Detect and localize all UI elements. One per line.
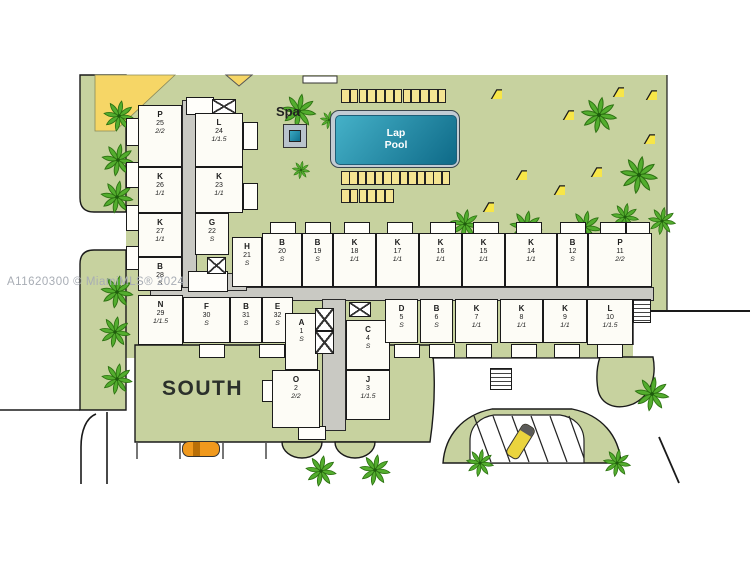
unit-number: 20 xyxy=(278,248,286,256)
unit-config: S xyxy=(244,320,249,328)
unit-config: 2/2 xyxy=(291,393,300,401)
unit-letter: C xyxy=(365,325,371,335)
elevator-icon xyxy=(315,308,334,331)
unit-H21: H21S xyxy=(232,237,262,287)
unit-number: 10 xyxy=(606,314,614,322)
unit-config: 1/1 xyxy=(155,236,164,244)
unit-J3: J31/1.5 xyxy=(346,370,390,420)
unit-config: 1/1.5 xyxy=(360,393,375,401)
porch xyxy=(466,344,492,358)
unit-number: 18 xyxy=(351,248,359,256)
unit-letter: B xyxy=(434,304,440,314)
unit-number: 6 xyxy=(435,314,439,322)
unit-letter: K xyxy=(562,304,568,314)
unit-A1: A1S xyxy=(285,313,318,370)
unit-letter: J xyxy=(366,375,370,385)
unit-letter: L xyxy=(217,118,222,128)
unit-config: S xyxy=(434,322,439,330)
unit-number: 15 xyxy=(480,248,488,256)
unit-K14: K141/1 xyxy=(505,233,557,287)
unit-letter: O xyxy=(293,375,299,385)
unit-L24: L241/1.5 xyxy=(195,113,243,167)
unit-number: 17 xyxy=(394,248,402,256)
unit-letter: B xyxy=(570,238,576,248)
unit-number: 30 xyxy=(203,312,211,320)
unit-config: 1/1 xyxy=(479,256,488,264)
unit-letter: K xyxy=(352,238,358,248)
unit-number: 7 xyxy=(475,314,479,322)
unit-config: S xyxy=(570,256,575,264)
unit-B31: B31S xyxy=(230,297,262,343)
unit-config: 1/1.5 xyxy=(153,318,168,326)
unit-K9: K91/1 xyxy=(543,299,587,343)
unit-number: 23 xyxy=(215,182,223,190)
unit-number: 16 xyxy=(437,248,445,256)
lap-pool: Lap Pool xyxy=(330,110,460,168)
unit-letter: K xyxy=(157,172,163,182)
unit-letter: K xyxy=(528,238,534,248)
unit-letter: K xyxy=(157,218,163,228)
porch xyxy=(199,344,225,358)
unit-D5: D5S xyxy=(385,299,418,343)
unit-config: S xyxy=(299,336,304,344)
unit-number: 11 xyxy=(616,248,623,256)
unit-config: S xyxy=(275,320,280,328)
unit-O2: O22/2 xyxy=(272,370,320,428)
elevator-icon xyxy=(207,257,226,274)
site-plan: P252/2L241/1.5K261/1K231/1K271/1G22SB28S… xyxy=(0,0,750,563)
porch xyxy=(259,344,285,358)
spa-water xyxy=(289,130,301,142)
unit-number: 21 xyxy=(243,252,251,260)
unit-number: 9 xyxy=(563,314,567,322)
porch xyxy=(554,344,580,358)
unit-config: 1/1 xyxy=(560,322,569,330)
porch xyxy=(429,344,455,358)
unit-letter: K xyxy=(474,304,480,314)
unit-K23: K231/1 xyxy=(195,167,243,213)
unit-K17: K171/1 xyxy=(376,233,419,287)
unit-letter: P xyxy=(617,238,622,248)
unit-config: 1/1.5 xyxy=(211,136,226,144)
porch xyxy=(597,344,623,358)
unit-config: 1/1 xyxy=(472,322,481,330)
unit-number: 4 xyxy=(366,335,370,343)
unit-config: S xyxy=(210,236,215,244)
unit-letter: P xyxy=(157,110,162,120)
south-label: SOUTH xyxy=(162,377,243,401)
unit-number: 19 xyxy=(314,248,322,256)
unit-P11: P112/2 xyxy=(588,233,652,287)
unit-config: S xyxy=(280,256,285,264)
stairs-icon xyxy=(633,299,651,323)
unit-number: 24 xyxy=(215,128,223,136)
orange-car xyxy=(182,441,220,457)
unit-number: 27 xyxy=(156,228,164,236)
unit-config: 1/1 xyxy=(214,190,223,198)
unit-number: 8 xyxy=(520,314,524,322)
unit-letter: D xyxy=(399,304,405,314)
unit-letter: K xyxy=(481,238,487,248)
unit-letter: F xyxy=(204,302,209,312)
unit-F30: F30S xyxy=(183,297,230,343)
spa xyxy=(283,124,307,148)
unit-letter: B xyxy=(315,238,321,248)
vestibule xyxy=(188,271,228,292)
unit-L10: L101/1.5 xyxy=(587,299,633,345)
mls-watermark: A11620300 © MiamiMLS® 2024 xyxy=(7,276,184,288)
porch xyxy=(394,344,420,358)
unit-config: 1/1 xyxy=(350,256,359,264)
stairs-icon xyxy=(490,368,512,390)
unit-K7: K71/1 xyxy=(455,299,498,343)
unit-G22: G22S xyxy=(195,213,229,255)
unit-K8: K81/1 xyxy=(500,299,543,343)
unit-letter: B xyxy=(157,262,163,272)
unit-letter: L xyxy=(608,304,613,314)
unit-letter: K xyxy=(438,238,444,248)
unit-number: 29 xyxy=(157,310,165,318)
lap-pool-water: Lap Pool xyxy=(335,115,457,165)
unit-number: 2 xyxy=(294,385,298,393)
unit-K18: K181/1 xyxy=(333,233,376,287)
balcony xyxy=(243,122,258,150)
spa-label: Spa xyxy=(276,104,300,119)
unit-config: S xyxy=(399,322,404,330)
entry-tab xyxy=(298,426,326,440)
unit-letter: B xyxy=(243,302,249,312)
elevator-icon xyxy=(212,99,236,114)
unit-letter: G xyxy=(209,218,215,228)
unit-letter: H xyxy=(244,242,250,252)
unit-number: 12 xyxy=(569,248,577,256)
porch xyxy=(511,344,537,358)
unit-B6: B6S xyxy=(420,299,453,343)
unit-config: 2/2 xyxy=(615,256,624,264)
balcony xyxy=(243,183,258,210)
unit-P25: P252/2 xyxy=(138,105,182,167)
unit-N29: N291/1.5 xyxy=(138,295,183,345)
unit-config: 1/1 xyxy=(526,256,535,264)
unit-number: 31 xyxy=(242,312,250,320)
unit-K27: K271/1 xyxy=(138,213,182,257)
unit-letter: A xyxy=(299,318,305,328)
unit-letter: N xyxy=(158,300,164,310)
unit-config: 1/1 xyxy=(393,256,402,264)
unit-config: S xyxy=(204,320,209,328)
unit-number: 32 xyxy=(274,312,282,320)
unit-number: 14 xyxy=(527,248,535,256)
unit-config: S xyxy=(315,256,320,264)
unit-number: 5 xyxy=(400,314,404,322)
unit-letter: E xyxy=(275,302,280,312)
elevator-icon xyxy=(349,302,371,317)
unit-K16: K161/1 xyxy=(419,233,462,287)
lap-pool-label: Lap Pool xyxy=(374,128,418,151)
unit-letter: K xyxy=(395,238,401,248)
unit-number: 1 xyxy=(300,328,304,336)
unit-K15: K151/1 xyxy=(462,233,505,287)
unit-number: 22 xyxy=(208,228,216,236)
unit-config: S xyxy=(366,343,371,351)
unit-config: 1/1 xyxy=(517,322,526,330)
unit-letter: K xyxy=(519,304,525,314)
unit-K26: K261/1 xyxy=(138,167,182,213)
unit-config: 2/2 xyxy=(155,128,164,136)
elevator-icon xyxy=(315,331,334,354)
unit-config: 1/1 xyxy=(155,190,164,198)
unit-letter: B xyxy=(279,238,285,248)
unit-config: S xyxy=(245,260,250,268)
unit-B12: B12S xyxy=(557,233,588,287)
unit-number: 26 xyxy=(156,182,164,190)
unit-letter: K xyxy=(216,172,222,182)
unit-B19: B19S xyxy=(302,233,333,287)
unit-config: 1/1 xyxy=(436,256,445,264)
unit-number: 3 xyxy=(366,385,370,393)
unit-C4: C4S xyxy=(346,320,390,370)
unit-number: 25 xyxy=(156,120,164,128)
unit-config: 1/1.5 xyxy=(602,322,617,330)
unit-B20: B20S xyxy=(262,233,302,287)
